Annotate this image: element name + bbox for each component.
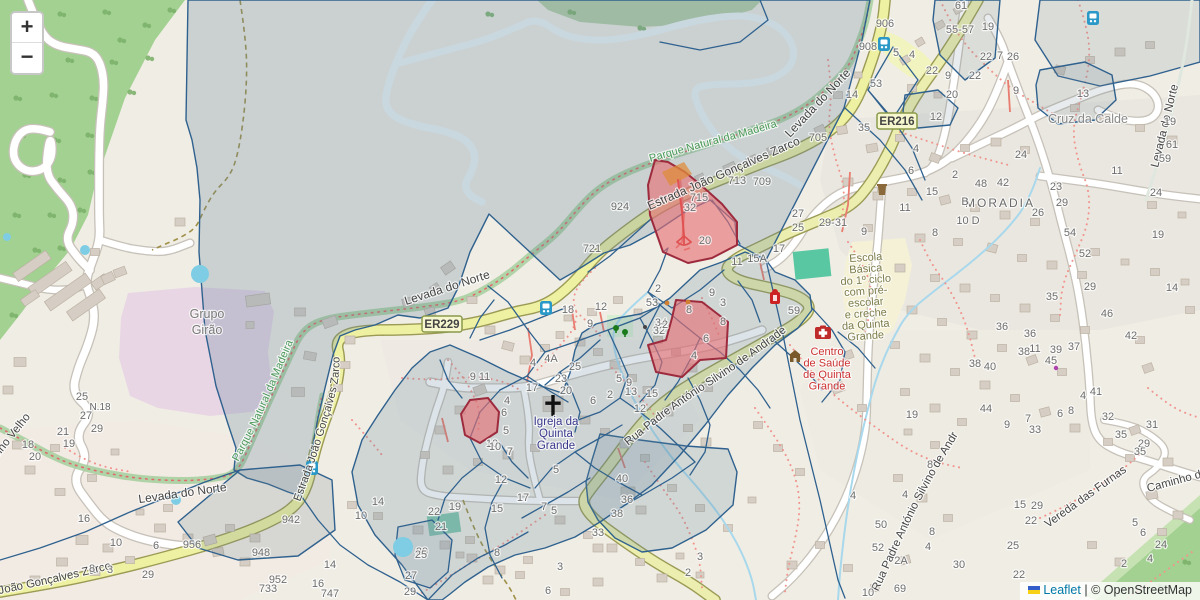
svg-text:22: 22 — [1013, 569, 1025, 581]
svg-text:36: 36 — [621, 494, 633, 506]
svg-text:29: 29 — [142, 569, 154, 581]
svg-text:2: 2 — [952, 169, 958, 181]
svg-text:8: 8 — [720, 316, 726, 328]
svg-text:29: 29 — [1084, 281, 1096, 293]
svg-text:942: 942 — [282, 514, 300, 526]
svg-text:11: 11 — [1029, 343, 1040, 355]
svg-text:12: 12 — [495, 474, 507, 486]
svg-text:21: 21 — [435, 521, 447, 533]
svg-text:53: 53 — [870, 78, 882, 90]
svg-text:4: 4 — [1147, 553, 1153, 565]
svg-text:ER216: ER216 — [879, 116, 914, 128]
svg-text:7: 7 — [507, 446, 513, 458]
svg-text:4: 4 — [504, 395, 510, 407]
svg-text:10: 10 — [355, 510, 367, 522]
svg-text:22: 22 — [1025, 515, 1037, 527]
svg-text:25: 25 — [415, 549, 427, 561]
svg-text:6: 6 — [590, 395, 596, 407]
svg-text:5: 5 — [551, 505, 557, 517]
svg-text:ER229: ER229 — [424, 319, 459, 331]
svg-text:15: 15 — [646, 388, 658, 400]
svg-text:46: 46 — [1101, 308, 1113, 320]
svg-text:12: 12 — [930, 111, 942, 123]
svg-text:5: 5 — [1132, 517, 1138, 529]
svg-text:906: 906 — [876, 18, 894, 30]
svg-text:26: 26 — [1032, 207, 1044, 219]
svg-text:Girão: Girão — [192, 323, 223, 337]
svg-text:24: 24 — [1155, 539, 1167, 551]
svg-text:956: 956 — [183, 539, 201, 551]
svg-text:24: 24 — [1015, 149, 1027, 161]
svg-text:de Quinta: de Quinta — [803, 369, 852, 381]
svg-text:9: 9 — [1013, 85, 1019, 97]
svg-text:948: 948 — [252, 547, 270, 559]
svg-text:5: 5 — [553, 464, 559, 476]
svg-text:Grande: Grande — [847, 329, 884, 344]
svg-text:44: 44 — [980, 403, 992, 415]
svg-text:721: 721 — [583, 243, 601, 255]
svg-text:69: 69 — [894, 583, 906, 595]
svg-text:16: 16 — [312, 578, 324, 590]
svg-text:29: 29 — [1056, 197, 1068, 209]
svg-text:4: 4 — [909, 49, 915, 61]
svg-text:9: 9 — [1004, 419, 1010, 431]
svg-text:B: B — [961, 196, 968, 208]
svg-text:19: 19 — [1152, 229, 1164, 241]
svg-text:2: 2 — [607, 389, 613, 401]
svg-text:5: 5 — [616, 373, 622, 385]
svg-text:25: 25 — [569, 361, 581, 373]
svg-text:7: 7 — [997, 50, 1003, 62]
svg-text:59: 59 — [1159, 153, 1171, 165]
svg-text:3: 3 — [107, 564, 113, 576]
svg-text:20: 20 — [560, 385, 572, 397]
svg-text:8: 8 — [929, 526, 935, 538]
svg-text:22: 22 — [969, 70, 981, 82]
svg-text:25: 25 — [76, 391, 88, 403]
svg-text:22: 22 — [980, 51, 992, 63]
svg-text:Quinta: Quinta — [539, 428, 573, 440]
svg-text:9: 9 — [587, 318, 593, 330]
svg-text:14: 14 — [846, 89, 858, 101]
svg-text:12: 12 — [634, 403, 646, 415]
svg-text:3: 3 — [557, 561, 563, 573]
svg-text:4: 4 — [850, 490, 856, 502]
svg-text:11: 11 — [1111, 165, 1122, 177]
svg-text:6: 6 — [501, 407, 507, 419]
svg-text:2: 2 — [662, 319, 668, 331]
svg-text:908: 908 — [859, 41, 877, 53]
svg-text:15: 15 — [1014, 499, 1026, 511]
svg-text:22: 22 — [926, 65, 938, 77]
svg-text:6: 6 — [1140, 527, 1146, 539]
svg-text:14: 14 — [372, 496, 384, 508]
svg-text:37: 37 — [1068, 341, 1080, 353]
svg-text:19: 19 — [906, 409, 918, 421]
svg-text:6: 6 — [1057, 408, 1063, 420]
svg-text:8: 8 — [1068, 405, 1074, 417]
svg-text:9 11: 9 11 — [470, 371, 491, 383]
svg-text:8: 8 — [89, 563, 95, 575]
svg-text:31: 31 — [1146, 419, 1158, 431]
svg-text:8: 8 — [927, 459, 933, 471]
svg-text:35: 35 — [1134, 446, 1146, 458]
svg-text:21: 21 — [57, 426, 69, 438]
svg-text:15: 15 — [491, 503, 503, 515]
svg-text:6: 6 — [153, 540, 159, 552]
svg-text:36: 36 — [996, 321, 1008, 333]
svg-text:38: 38 — [969, 358, 981, 370]
svg-text:de Saúde: de Saúde — [803, 358, 850, 370]
svg-text:41: 41 — [1090, 386, 1102, 398]
svg-text:29-31: 29-31 — [819, 217, 847, 229]
svg-text:61: 61 — [955, 0, 967, 12]
svg-text:45: 45 — [1045, 355, 1057, 367]
svg-text:733: 733 — [259, 583, 277, 595]
svg-text:42: 42 — [997, 177, 1009, 189]
svg-text:38: 38 — [1018, 346, 1030, 358]
svg-text:4: 4 — [913, 143, 919, 155]
svg-text:38: 38 — [611, 508, 623, 520]
svg-text:14: 14 — [324, 559, 336, 571]
svg-text:2A: 2A — [894, 555, 908, 567]
svg-text:9: 9 — [945, 70, 951, 82]
svg-text:29: 29 — [404, 586, 416, 598]
svg-text:17: 17 — [526, 382, 538, 394]
svg-text:30: 30 — [953, 559, 965, 571]
svg-text:35: 35 — [1046, 291, 1058, 303]
svg-text:53: 53 — [646, 297, 658, 309]
svg-text:9: 9 — [861, 226, 867, 238]
svg-text:10: 10 — [110, 537, 122, 549]
svg-text:3: 3 — [720, 297, 726, 309]
svg-text:23: 23 — [555, 373, 567, 385]
svg-text:50: 50 — [875, 519, 887, 531]
svg-text:33: 33 — [1029, 424, 1041, 436]
svg-text:8: 8 — [686, 304, 692, 316]
svg-text:36: 36 — [1024, 328, 1036, 340]
svg-text:29: 29 — [1031, 500, 1043, 512]
svg-text:20: 20 — [29, 451, 41, 463]
svg-text:29: 29 — [91, 423, 103, 435]
svg-text:2: 2 — [1121, 558, 1127, 570]
svg-text:25: 25 — [792, 222, 804, 234]
svg-text:27: 27 — [792, 208, 804, 220]
svg-text:2: 2 — [655, 283, 661, 295]
svg-text:10 D: 10 D — [956, 215, 979, 227]
svg-text:42: 42 — [1125, 330, 1137, 342]
svg-text:48: 48 — [975, 178, 987, 190]
svg-text:3: 3 — [697, 551, 703, 563]
svg-text:MORADIA: MORADIA — [965, 196, 1035, 210]
svg-text:33: 33 — [592, 527, 604, 539]
svg-text:16: 16 — [78, 513, 90, 525]
svg-text:4: 4 — [925, 541, 931, 553]
svg-text:6: 6 — [545, 585, 551, 597]
svg-text:4: 4 — [1080, 390, 1086, 402]
svg-text:59: 59 — [788, 305, 800, 317]
svg-text:32: 32 — [1102, 411, 1114, 423]
svg-text:10: 10 — [489, 441, 501, 453]
svg-text:6: 6 — [703, 333, 709, 345]
svg-text:11: 11 — [899, 202, 910, 214]
svg-text:55-57: 55-57 — [946, 24, 974, 36]
svg-text:713: 713 — [728, 175, 746, 187]
svg-text:20: 20 — [699, 235, 711, 247]
svg-text:N.18: N.18 — [89, 402, 111, 413]
svg-text:14: 14 — [1166, 282, 1178, 294]
svg-text:12: 12 — [595, 301, 607, 313]
svg-text:Centro: Centro — [810, 346, 843, 358]
svg-text:Igreja da: Igreja da — [534, 416, 579, 428]
svg-text:13: 13 — [1077, 88, 1089, 100]
svg-text:4: 4 — [530, 357, 536, 369]
svg-text:9: 9 — [709, 287, 715, 299]
svg-text:23: 23 — [1050, 181, 1062, 193]
svg-text:52: 52 — [1079, 248, 1091, 260]
svg-text:5: 5 — [893, 47, 899, 59]
svg-text:Grande: Grande — [809, 381, 846, 393]
svg-text:19: 19 — [1164, 116, 1176, 128]
svg-text:Grande: Grande — [537, 440, 575, 452]
svg-text:4A: 4A — [544, 353, 558, 365]
svg-text:26: 26 — [1007, 51, 1019, 63]
svg-text:709: 709 — [753, 176, 771, 188]
svg-text:17: 17 — [773, 243, 785, 255]
svg-text:Grupo: Grupo — [190, 307, 225, 321]
svg-text:5: 5 — [503, 425, 509, 437]
svg-text:15A: 15A — [747, 253, 767, 265]
svg-text:52: 52 — [872, 542, 884, 554]
svg-text:40: 40 — [616, 473, 628, 485]
svg-text:18: 18 — [562, 304, 574, 316]
svg-text:6: 6 — [908, 165, 914, 177]
svg-text:7: 7 — [541, 501, 547, 513]
svg-text:54: 54 — [1064, 227, 1076, 239]
svg-text:2: 2 — [685, 567, 691, 579]
svg-text:25: 25 — [1007, 540, 1019, 552]
svg-text:15: 15 — [926, 186, 938, 198]
svg-text:35: 35 — [858, 122, 870, 134]
svg-text:19: 19 — [63, 438, 75, 450]
svg-text:61: 61 — [1166, 139, 1178, 151]
svg-text:19: 19 — [982, 21, 994, 33]
svg-text:40: 40 — [984, 361, 996, 373]
svg-text:Cruz da Calde: Cruz da Calde — [1048, 112, 1128, 126]
svg-text:20: 20 — [946, 89, 958, 101]
svg-text:32: 32 — [684, 202, 696, 214]
svg-text:35: 35 — [1115, 429, 1127, 441]
svg-text:924: 924 — [611, 201, 629, 213]
svg-text:11: 11 — [731, 256, 742, 268]
svg-text:19: 19 — [449, 501, 461, 513]
svg-text:18: 18 — [22, 439, 34, 451]
svg-text:13: 13 — [625, 386, 637, 398]
svg-text:8: 8 — [932, 227, 938, 239]
svg-text:4: 4 — [691, 350, 697, 362]
svg-text:705: 705 — [809, 132, 827, 144]
svg-text:17: 17 — [517, 492, 529, 504]
svg-text:24: 24 — [1150, 187, 1162, 199]
svg-text:4: 4 — [902, 489, 908, 501]
svg-text:10: 10 — [862, 587, 874, 599]
svg-text:8: 8 — [494, 547, 500, 559]
svg-text:22: 22 — [428, 506, 440, 518]
svg-text:27: 27 — [80, 410, 92, 422]
svg-text:27: 27 — [405, 570, 417, 582]
